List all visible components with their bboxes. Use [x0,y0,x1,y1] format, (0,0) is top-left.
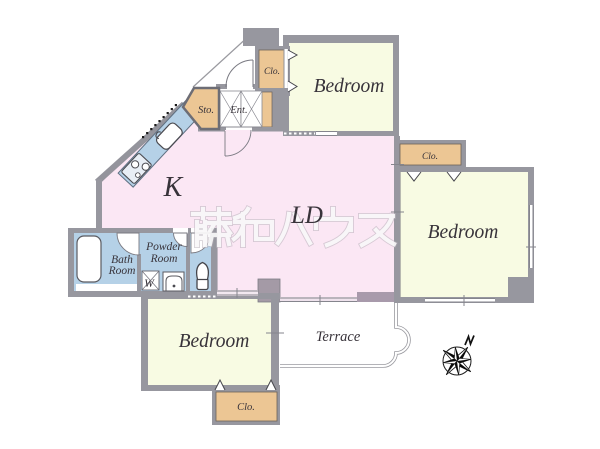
svg-text:LD: LD [290,202,323,229]
svg-text:Room: Room [150,253,178,265]
svg-text:K: K [163,172,184,203]
svg-text:W: W [144,278,155,290]
svg-text:Terrace: Terrace [316,329,361,345]
svg-text:Clo.: Clo. [264,67,280,77]
svg-text:Room: Room [108,265,136,277]
svg-text:Powder: Powder [145,241,182,253]
svg-text:Bedroom: Bedroom [314,76,385,97]
svg-text:Clo.: Clo. [237,402,255,413]
svg-text:Bedroom: Bedroom [428,222,499,243]
svg-text:Ent.: Ent. [229,105,247,116]
svg-text:Bedroom: Bedroom [179,331,250,352]
svg-text:Sto.: Sto. [198,105,214,116]
svg-text:Clo.: Clo. [422,152,438,162]
